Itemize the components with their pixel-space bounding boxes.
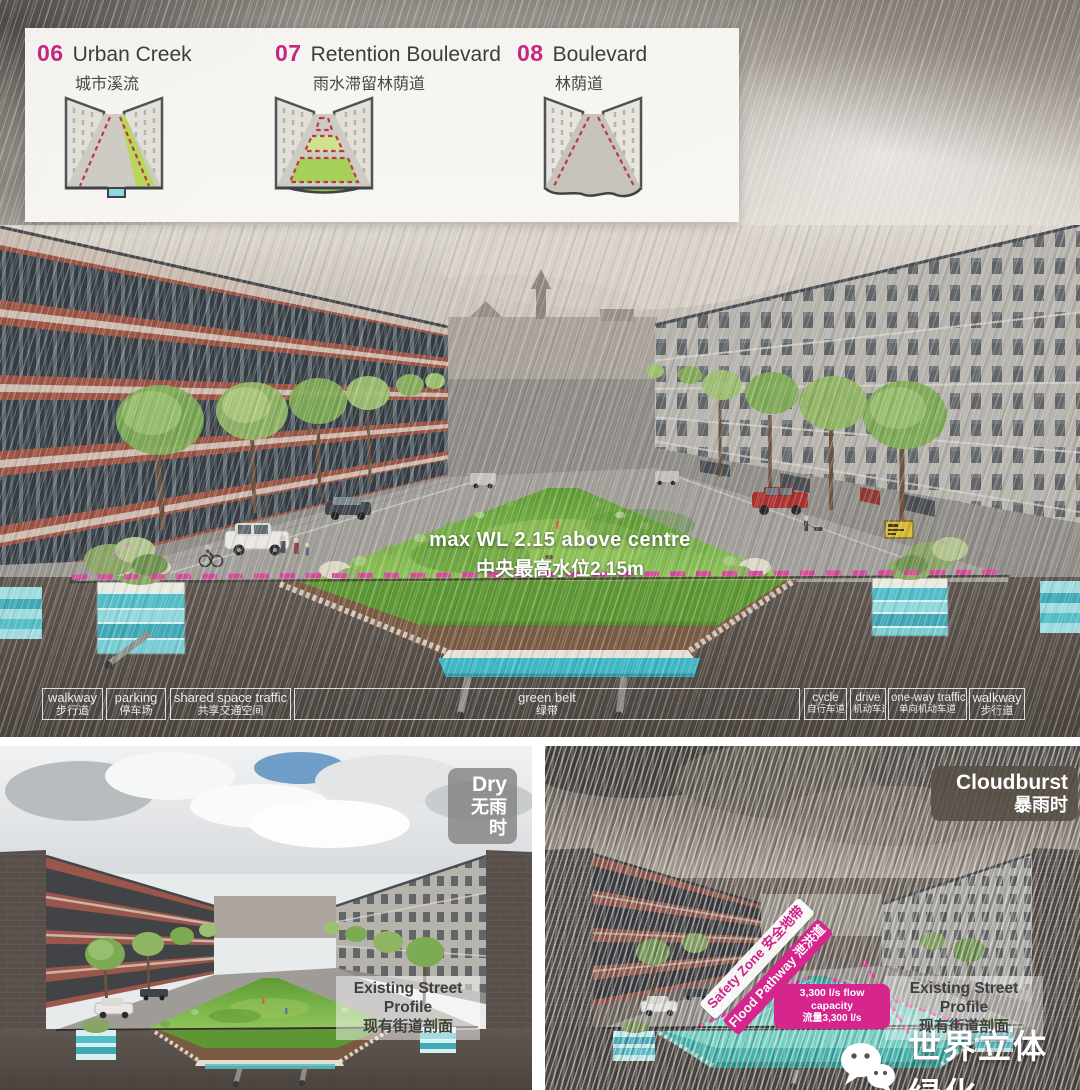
- legend-item-boulevard: 08 Boulevard 林荫道: [517, 40, 731, 94]
- zone-box-parking: parking停车场: [106, 688, 166, 720]
- dry-scenario-panel: Dry 无雨时 Existing Street Profile 现有街道剖面: [0, 746, 532, 1090]
- cloudburst-badge: Cloudburst 暴雨时: [931, 766, 1078, 821]
- zone-box-drive: drive机动车道: [850, 688, 886, 720]
- dry-badge: Dry 无雨时: [448, 768, 517, 844]
- legend-number: 08: [517, 40, 544, 67]
- zone-box-cycle: cycle自行车道: [804, 688, 847, 720]
- legend-item-urban-creek: 06 Urban Creek 城市溪流: [37, 40, 263, 94]
- edge-drain-left: [0, 587, 42, 639]
- zone-box-walkway-left: walkway步行道: [42, 688, 103, 720]
- wechat-icon: [838, 1040, 900, 1090]
- max-water-level-en: max WL 2.15 above centre: [80, 529, 1040, 552]
- urban-creek-section-icon: [58, 94, 170, 198]
- zone-box-shared-space: shared space traffic共享交通空间: [170, 688, 291, 720]
- legend-item-retention-boulevard: 07 Retention Boulevard 雨水滞留林荫道: [275, 40, 513, 94]
- main-street-render: max WL 2.15 above centre 中央最高水位2.15m wal…: [0, 225, 1080, 737]
- zone-box-one-way: one-way traffic单向机动车道: [888, 688, 967, 720]
- boulevard-section-icon: [537, 94, 649, 198]
- legend-title: Urban Creek: [73, 43, 192, 67]
- legend-title: Retention Boulevard: [311, 43, 501, 67]
- legend-panel: 06 Urban Creek 城市溪流 07 Retention Bouleva…: [25, 28, 739, 222]
- max-water-level-cn: 中央最高水位2.15m: [80, 554, 1040, 581]
- max-water-level-label: max WL 2.15 above centre 中央最高水位2.15m: [80, 529, 1040, 581]
- legend-subtitle-cn: 城市溪流: [37, 70, 263, 94]
- main-scene-illustration: [0, 225, 1080, 737]
- legend-subtitle-cn: 林荫道: [517, 70, 731, 94]
- zone-box-green-belt: green belt绿带: [294, 688, 800, 720]
- street-zone-strip: walkway步行道 parking停车场 shared space traff…: [0, 688, 1080, 724]
- watermark-text: 世界立体绿化: [908, 1020, 1080, 1090]
- watermark: 世界立体绿化: [838, 1020, 1080, 1090]
- poster-canvas: 06 Urban Creek 城市溪流 07 Retention Bouleva…: [0, 0, 1080, 1090]
- edge-drain-right: [1040, 581, 1080, 633]
- legend-number: 07: [275, 40, 302, 67]
- zone-box-walkway-right: walkway步行道: [969, 688, 1025, 720]
- existing-street-profile-label: Existing Street Profile 现有街道剖面: [336, 976, 480, 1040]
- distant-buildings: [214, 896, 336, 938]
- legend-number: 06: [37, 40, 64, 67]
- retention-boulevard-section-icon: [268, 94, 380, 198]
- legend-subtitle-cn: 雨水滞留林荫道: [275, 70, 513, 94]
- legend-title: Boulevard: [553, 43, 648, 67]
